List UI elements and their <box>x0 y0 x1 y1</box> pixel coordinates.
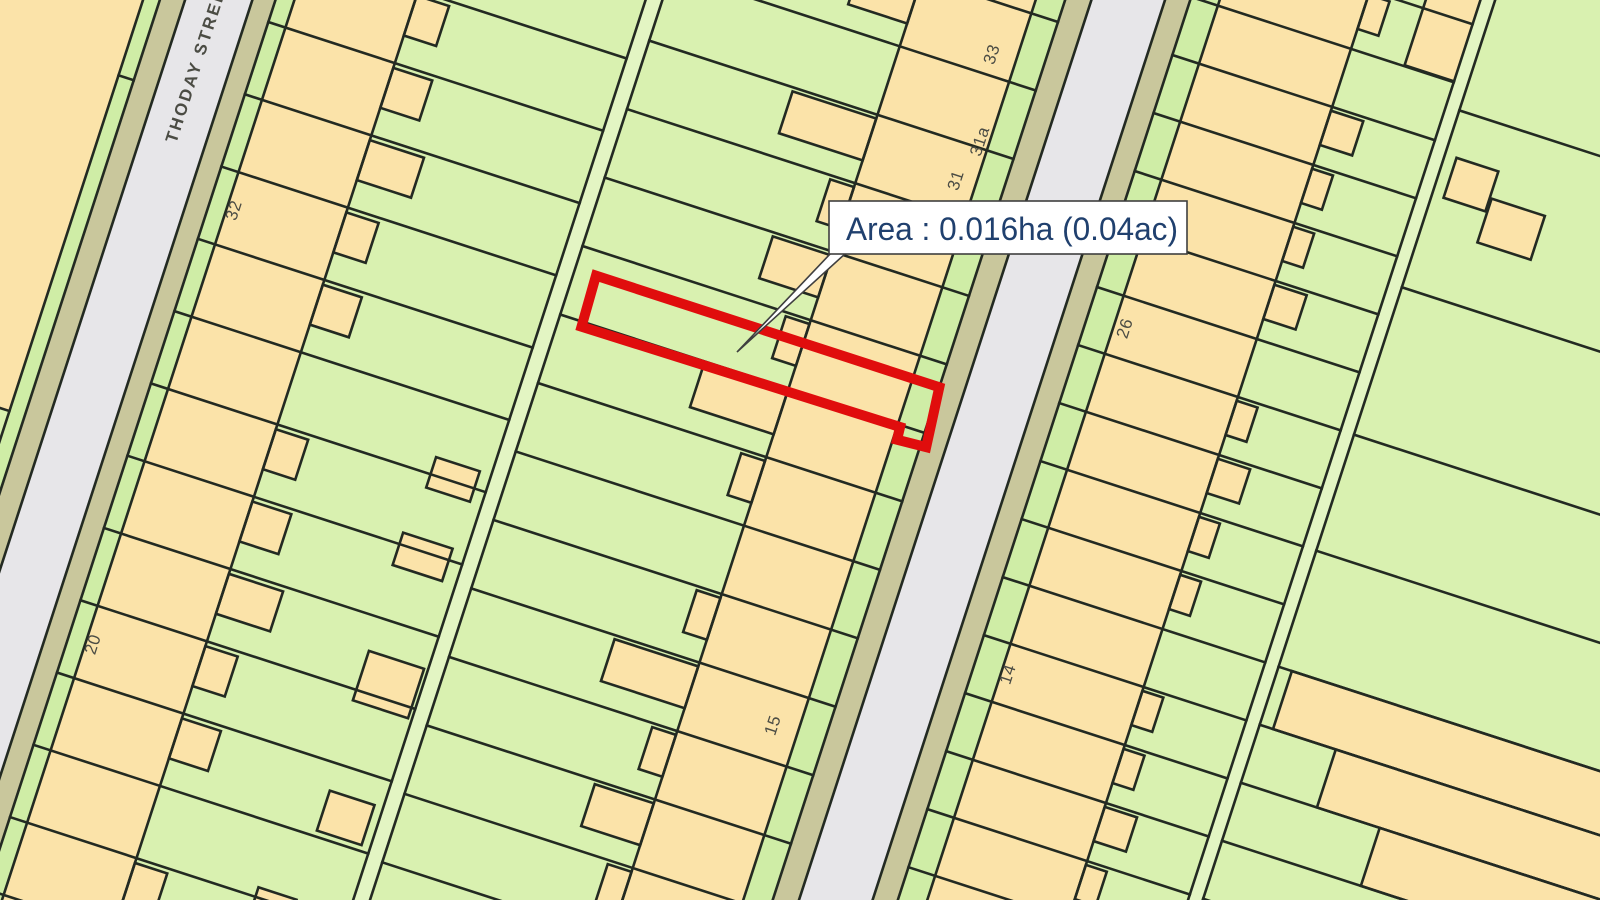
cadastral-map-canvas[interactable]: THODAY STREET 32 20 33 31a 31 15 26 14 A… <box>0 0 1600 900</box>
cadastral-map-viewport[interactable]: THODAY STREET 32 20 33 31a 31 15 26 14 A… <box>0 0 1600 900</box>
parcel-fills <box>0 0 1600 900</box>
area-callout-text: Area : 0.016ha (0.04ac) <box>846 211 1178 247</box>
map-rotated-layer <box>0 0 1600 900</box>
